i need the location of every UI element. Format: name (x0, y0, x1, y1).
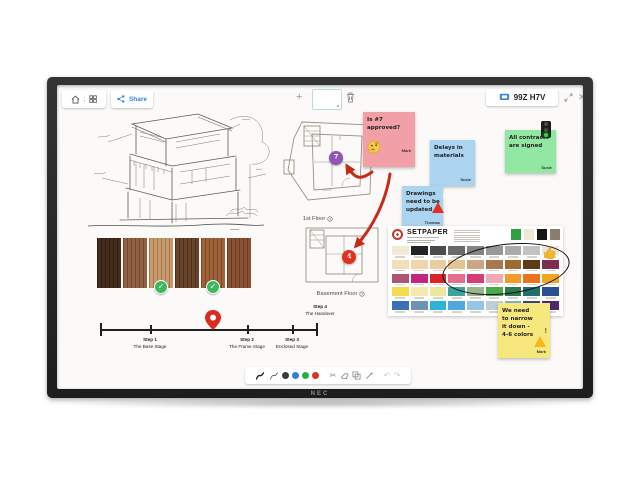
page-thumbnail[interactable] (312, 89, 342, 110)
wood-swatch[interactable]: ✓ (201, 238, 225, 288)
share-label: Share (129, 96, 147, 103)
numbered-marker-4[interactable]: 4 (342, 250, 356, 264)
palette-swatch (392, 274, 409, 287)
pen-color-dot[interactable] (312, 372, 319, 379)
trash-icon[interactable] (346, 92, 355, 103)
palette-swatch (430, 246, 447, 259)
sticky-note-approved[interactable]: Is #7 approved? Mark (363, 112, 415, 167)
location-pin-icon[interactable] (205, 310, 221, 330)
timeline-step-4: Step 4The Handover (287, 304, 353, 318)
magic-wand-icon[interactable] (365, 371, 374, 380)
sticky-note-delays[interactable]: Delays in materials Susie (430, 140, 475, 186)
traffic-light-icon (541, 121, 551, 138)
house-sketch[interactable] (80, 108, 270, 240)
floor-label-icon (359, 291, 365, 297)
share-button[interactable]: Share (111, 90, 153, 108)
timeline-tick (316, 323, 318, 336)
palette-header-swatches (511, 229, 560, 240)
redo-icon[interactable]: ↷ (394, 372, 401, 380)
timeline-tick (100, 323, 102, 336)
divider-dots (84, 97, 86, 102)
palette-card-header: SETPAPER (392, 229, 560, 244)
wood-swatch[interactable] (123, 238, 147, 288)
palette-swatch (411, 260, 428, 273)
palette-fineprint (407, 237, 448, 243)
scissors-icon[interactable]: ✂ (329, 372, 336, 380)
marker-number: 4 (347, 252, 351, 261)
marker-number: 7 (334, 153, 338, 162)
palette-swatch (392, 260, 409, 273)
timeline-tick (150, 325, 152, 334)
timeline-step-1: Step 1The Base Stage (120, 337, 180, 351)
palette-logo-icon (392, 229, 403, 240)
grid-icon[interactable] (89, 95, 97, 103)
sticky-author: Mark (402, 148, 411, 153)
pen-color-dot[interactable] (292, 372, 299, 379)
palette-swatch (511, 229, 521, 240)
palette-swatch (392, 287, 409, 300)
alert-icon: ! (432, 202, 444, 213)
thinking-emoji-icon (367, 140, 381, 154)
add-page-button[interactable]: + (296, 91, 302, 103)
basement-floor-label: Basement Floor (301, 291, 381, 297)
canvas-menu-group[interactable] (62, 90, 106, 108)
wood-swatch[interactable] (227, 238, 251, 288)
floor-label-icon (327, 216, 333, 222)
sticky-note-drawings[interactable]: Drawings need to be updated Thomas ! (402, 186, 443, 228)
pen-colors (282, 372, 319, 379)
session-code: 99Z H7V (514, 93, 546, 102)
palette-fineprint (454, 229, 480, 242)
sticky-text: We need to narrow it down - 4-6 colors (502, 307, 536, 339)
minimize-icon[interactable] (564, 93, 573, 102)
whiteboard-canvas[interactable]: Share + 99Z H7V ✕ (57, 85, 583, 389)
monitor-shadow (42, 399, 598, 408)
sticky-text: Delays in materials (434, 144, 472, 160)
pen-color-dot[interactable] (282, 372, 289, 379)
timeline-tick (292, 325, 294, 334)
numbered-marker-7[interactable]: 7 (329, 151, 343, 165)
sticky-text: Is #7 approved? (367, 116, 412, 132)
palette-swatch (392, 246, 409, 259)
sticky-note-contracts[interactable]: All contracts are signed Susie (505, 130, 556, 173)
sticky-note-narrow-colors[interactable]: We need to narrow it down - 4-6 colors !… (498, 303, 550, 358)
palette-swatch (537, 229, 547, 240)
undo-icon[interactable]: ↶ (384, 372, 391, 380)
palette-swatch (411, 246, 428, 259)
wood-swatch[interactable]: ✓ (149, 238, 173, 288)
sticky-author: Thomas (425, 220, 440, 225)
palette-swatch (411, 287, 428, 300)
home-icon[interactable] (71, 95, 80, 104)
eraser-icon[interactable] (340, 371, 349, 380)
check-icon: ✓ (206, 280, 220, 294)
palette-swatch (430, 301, 447, 314)
pen-color-dot[interactable] (302, 372, 309, 379)
first-floor-label: 1st Floor (288, 216, 348, 222)
timeline-step-3: Step 3Enclosed Stage (262, 337, 322, 351)
monitor-brand-logo: NEC (47, 391, 593, 397)
shapes-icon[interactable] (352, 371, 361, 380)
page: Share + 99Z H7V ✕ (0, 0, 640, 480)
wood-swatch[interactable] (97, 238, 121, 288)
palette-swatch (467, 301, 484, 314)
thumbs-up-icon[interactable] (543, 246, 556, 259)
palette-swatch (524, 229, 534, 240)
session-badge[interactable]: 99Z H7V (486, 89, 558, 106)
check-icon: ✓ (154, 280, 168, 294)
palette-swatch (430, 287, 447, 300)
close-icon[interactable]: ✕ (578, 92, 583, 103)
palette-title: SETPAPER (407, 229, 448, 236)
highlighter-icon[interactable] (269, 370, 279, 381)
drawing-toolbar[interactable]: ✂ ↶ ↷ (245, 367, 411, 384)
sticky-author: Susie (460, 177, 471, 182)
palette-swatch (448, 301, 465, 314)
palette-swatch (411, 274, 428, 287)
palette-swatch (542, 287, 559, 300)
cast-screen-icon (499, 93, 510, 102)
pen-icon[interactable] (255, 370, 265, 381)
wood-swatch[interactable] (175, 238, 199, 288)
palette-swatch (392, 301, 409, 314)
display-bezel: Share + 99Z H7V ✕ (47, 77, 593, 398)
sticky-author: Mark (537, 349, 546, 354)
sticky-author: Susie (541, 165, 552, 170)
warning-icon: ! (534, 336, 546, 347)
palette-swatch (411, 301, 428, 314)
timeline-tick (247, 325, 249, 334)
wood-swatches[interactable]: ✓✓ (97, 238, 251, 288)
share-icon (117, 95, 125, 103)
palette-swatch (550, 229, 560, 240)
